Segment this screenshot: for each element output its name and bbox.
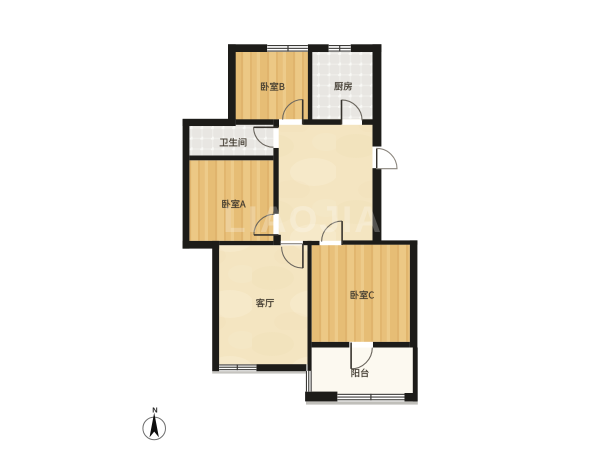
svg-text:N: N	[152, 405, 157, 414]
svg-text:LIAOJIA: LIAOJIA	[223, 199, 383, 240]
